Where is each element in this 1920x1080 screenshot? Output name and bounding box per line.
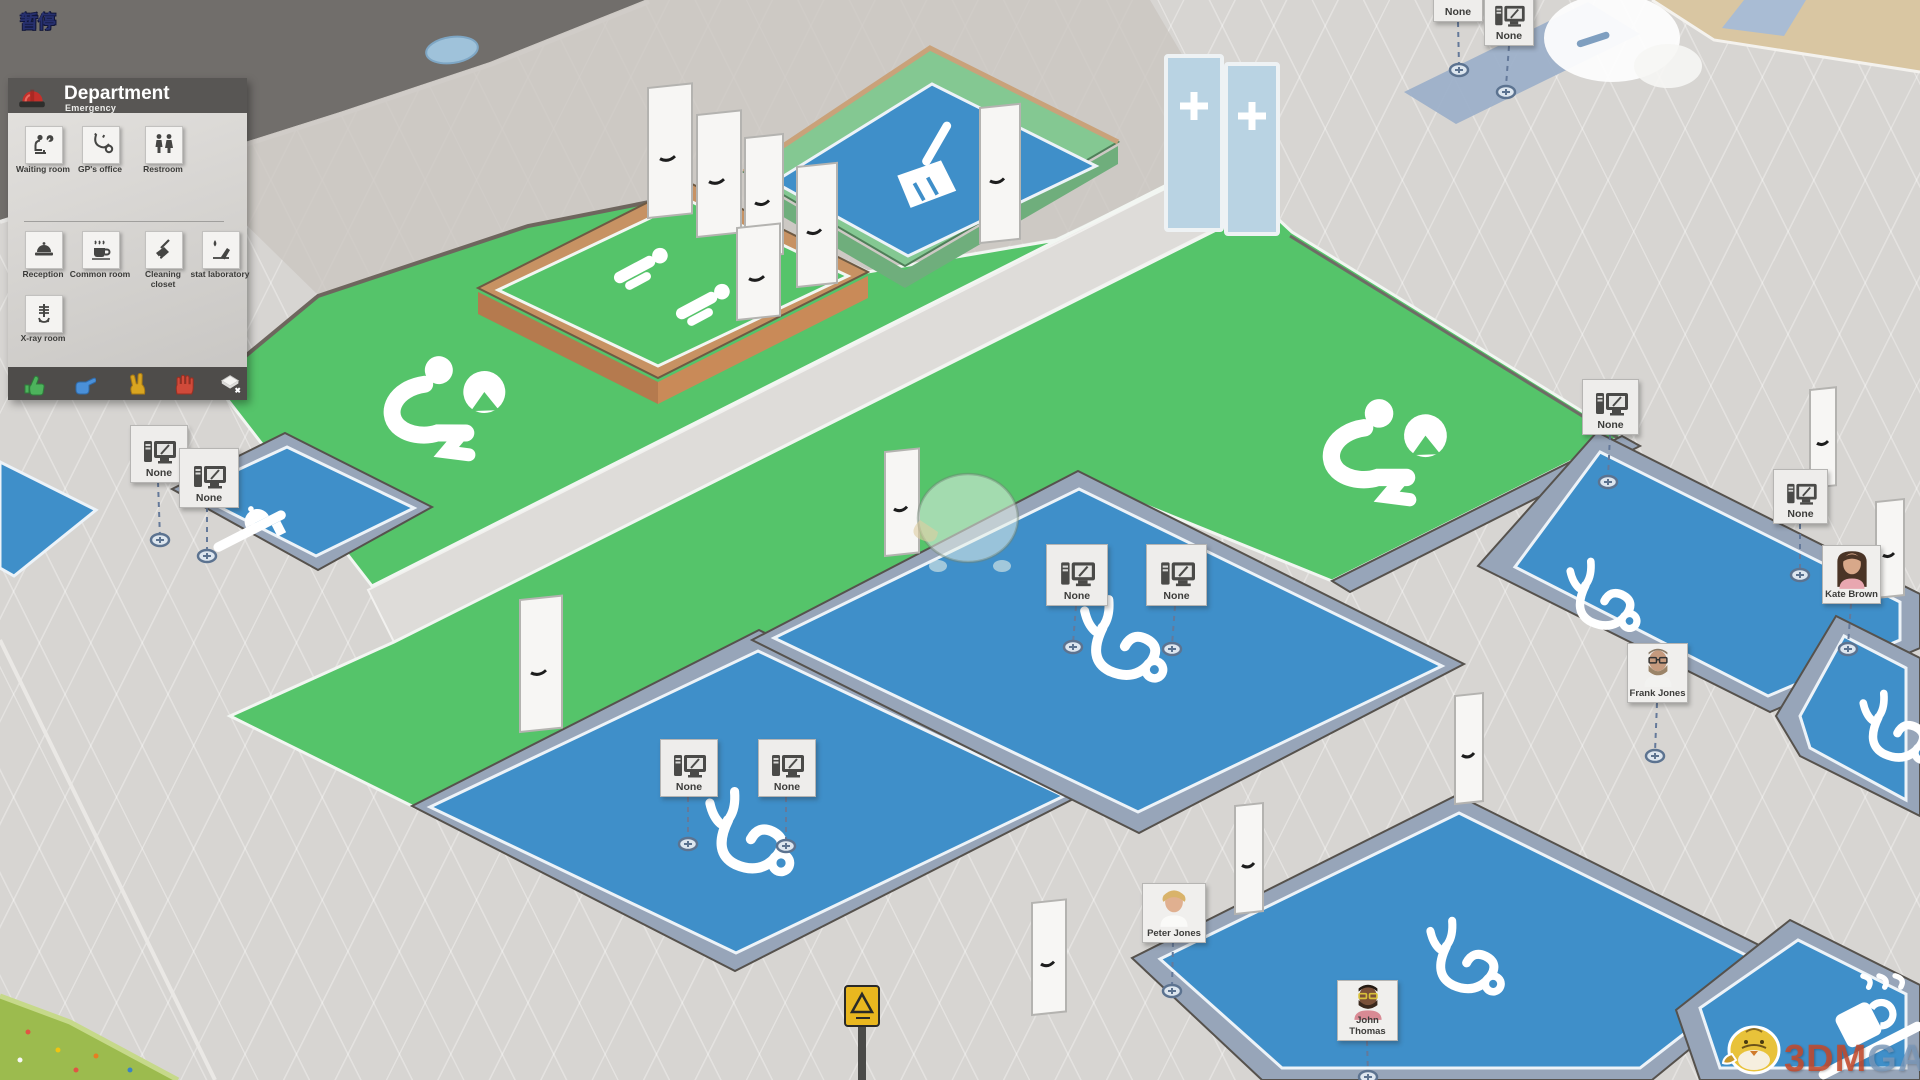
door[interactable] [648, 83, 692, 218]
blood-drop-icon [208, 237, 234, 263]
room-tile-xray-room[interactable] [25, 295, 63, 333]
man-woman-icon [151, 132, 177, 158]
sign-card[interactable]: None [179, 448, 239, 508]
department-panel: Department Emergency Waiting room GP's o… [8, 78, 247, 400]
thumbs-up-hand-icon[interactable] [22, 372, 46, 396]
room-tile-label: X-ray room [12, 334, 74, 344]
room-tile-reception[interactable] [25, 231, 63, 269]
door[interactable] [1032, 899, 1066, 1015]
room-tile-common-room[interactable] [82, 231, 120, 269]
sign-card[interactable]: None [1484, 0, 1534, 46]
sign-label: None [1445, 7, 1471, 18]
room-tile-label: Common room [69, 270, 131, 280]
computer-icon [142, 439, 176, 465]
grass-strip [0, 996, 178, 1080]
person-name: John Thomas [1338, 1016, 1397, 1038]
sign-card[interactable]: None [1146, 544, 1207, 606]
sign-label: None [1787, 509, 1813, 520]
sign-label: None [676, 782, 702, 793]
room-tile-label: Cleaning closet [132, 270, 194, 290]
game-screen: 暂停 None None None None None None None No… [0, 0, 1920, 1080]
sign-label: None [146, 468, 172, 479]
room-tile-label: stat laboratory [189, 270, 251, 280]
bird-logo-icon [1722, 1018, 1784, 1076]
coffee-cup-icon [88, 237, 114, 263]
panel-divider [24, 221, 224, 222]
computer-icon [770, 753, 804, 779]
sign-label: None [1496, 31, 1522, 42]
priority-toolbar [8, 367, 247, 400]
computer-icon [1785, 482, 1817, 506]
watermark: 3DMGAME [1722, 1018, 1920, 1076]
panel-subtitle: Emergency [65, 103, 116, 113]
xray-skeleton-icon [31, 301, 57, 327]
room-tile-waiting-room[interactable] [25, 126, 63, 164]
room-tile-label: GP's office [69, 165, 131, 175]
computer-icon [1594, 391, 1628, 417]
computer-icon [1493, 4, 1525, 28]
room-tile-label: Waiting room [12, 165, 74, 175]
door[interactable] [885, 448, 919, 556]
hospital-isometric-scene [0, 0, 1920, 1080]
sign-label: None [196, 493, 222, 504]
pointing-hand-icon[interactable] [72, 372, 96, 396]
panel-body: Waiting room GP's office Restroom Recept… [8, 113, 247, 367]
avatar [1829, 547, 1875, 589]
door[interactable] [1235, 803, 1263, 914]
panel-header: Department Emergency [8, 78, 247, 113]
sign-label: None [774, 782, 800, 793]
emergency-alarm-icon [16, 81, 48, 109]
stop-hand-icon[interactable] [172, 372, 196, 396]
door[interactable] [980, 104, 1020, 243]
door[interactable] [520, 596, 562, 732]
two-finger-hand-icon[interactable] [125, 372, 149, 396]
pause-indicator: 暂停 [20, 8, 56, 34]
computer-icon [1059, 560, 1095, 588]
watermark-brand-right: GAME [1867, 1042, 1920, 1076]
entrance-glass-doors[interactable] [1166, 56, 1278, 234]
sign-label: None [1163, 591, 1189, 602]
wet-floor-sign [845, 986, 879, 1080]
room-side-floor[interactable] [0, 462, 96, 576]
watermark-brand-left: 3DM [1784, 1042, 1867, 1076]
avatar [1635, 645, 1681, 687]
room-tile-cleaning-closet[interactable] [145, 231, 183, 269]
person-name: Kate Brown [1823, 590, 1880, 601]
person-name: Peter Jones [1143, 929, 1205, 940]
portrait-card-peter-jones[interactable]: Peter Jones [1142, 883, 1206, 943]
sign-label: None [1064, 591, 1090, 602]
desk-bell-icon [31, 237, 57, 263]
computer-icon [672, 753, 706, 779]
stethoscope-icon [88, 132, 114, 158]
door[interactable] [697, 110, 741, 237]
portrait-card-john-thomas[interactable]: John Thomas [1337, 980, 1398, 1041]
sign-card[interactable]: None [1433, 0, 1483, 22]
sign-card[interactable]: None [1582, 379, 1639, 435]
portrait-card-frank-jones[interactable]: Frank Jones [1627, 643, 1688, 703]
room-tile-restroom[interactable] [145, 126, 183, 164]
sign-card[interactable]: None [758, 739, 816, 797]
room-tile-label: Reception [12, 270, 74, 280]
panel-title: Department [64, 83, 170, 105]
avatar [1151, 885, 1197, 927]
door[interactable] [1455, 693, 1483, 804]
room-tile-gps-office[interactable] [82, 126, 120, 164]
door[interactable] [797, 163, 837, 287]
sign-card[interactable]: None [1046, 544, 1108, 606]
seated-person-clock-icon [31, 132, 57, 158]
room-tile-stat-laboratory[interactable] [202, 231, 240, 269]
person-name: Frank Jones [1628, 689, 1687, 700]
sign-card[interactable]: None [660, 739, 718, 797]
broom-icon [151, 237, 177, 263]
door[interactable] [737, 223, 780, 320]
sign-card[interactable]: None [1773, 469, 1828, 524]
portrait-card-kate-brown[interactable]: Kate Brown [1822, 545, 1881, 604]
computer-icon [1159, 560, 1195, 588]
sign-label: None [1597, 420, 1623, 431]
computer-icon [192, 464, 226, 490]
clear-tile-icon[interactable] [219, 372, 243, 396]
room-tile-label: Restroom [132, 165, 194, 175]
